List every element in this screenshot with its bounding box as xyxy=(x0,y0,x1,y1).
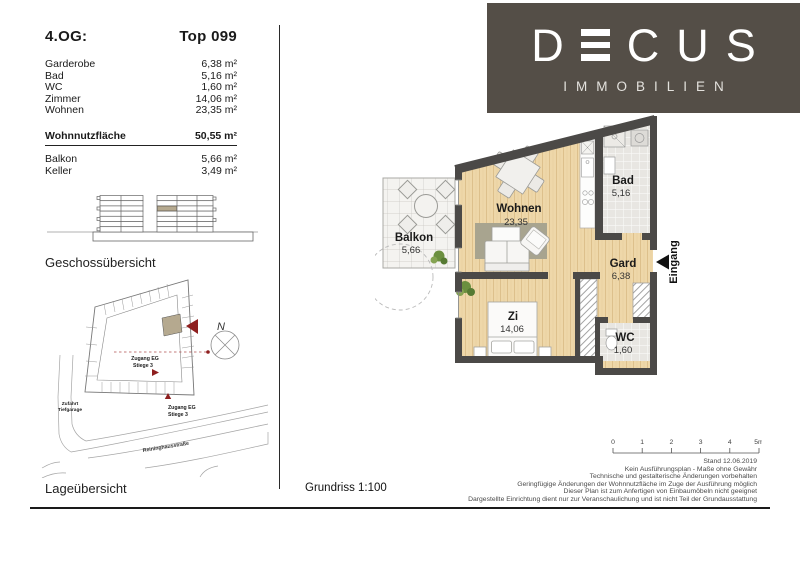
scale-tick: 3 xyxy=(699,439,703,446)
room-name: WC xyxy=(615,332,634,344)
scale-tick: 2 xyxy=(670,439,674,446)
compass-icon xyxy=(211,331,239,359)
room-area: 6,38 xyxy=(612,271,631,282)
room-name: Bad xyxy=(612,175,634,187)
room-name: Gard xyxy=(610,258,637,270)
disclaimer-line: Technische und gestalterische Änderungen… xyxy=(337,473,757,481)
disclaimer-line: Geringfügige Änderungen der Wohnnutzfläc… xyxy=(337,481,757,489)
entrance-label: Eingang xyxy=(668,240,680,283)
highlighted-unit xyxy=(162,314,182,336)
total-value: 50,55 m² xyxy=(195,130,237,142)
room-area: 1,60 xyxy=(614,345,633,356)
left-tower xyxy=(97,196,143,233)
access1-label-line2: Stiege 3 xyxy=(133,363,153,369)
street-label: Reininghausstraße xyxy=(142,441,189,454)
scale-tick: 5m xyxy=(754,439,762,446)
row-value: 3,49 m² xyxy=(201,166,237,178)
table-row: Balkon 5,66 m² xyxy=(45,154,237,166)
floor-overview-diagram xyxy=(45,192,260,250)
scale-tick: 0 xyxy=(611,439,615,446)
building-outline xyxy=(85,280,194,395)
brand-letter: U xyxy=(676,23,726,68)
disclaimer-line: Stand 12.06.2019 xyxy=(337,458,757,466)
brand-wordmark: D C U S xyxy=(531,23,756,68)
garage-label-line2: Tiefgarage xyxy=(58,407,83,413)
right-tower xyxy=(157,196,216,233)
bottom-rule xyxy=(30,507,770,509)
room-name: Zi xyxy=(508,311,518,323)
room-name: Balkon xyxy=(395,232,433,244)
disclaimer-line: Dieser Plan ist zum Anfertigen von Einba… xyxy=(337,488,757,496)
room-area: 5,66 xyxy=(402,245,421,256)
room-area: 14,06 xyxy=(500,324,524,335)
brand-letter: S xyxy=(726,23,773,68)
brand-letter: C xyxy=(627,23,677,68)
access1-label-line1: Zugang EG xyxy=(131,356,159,362)
site-plan: Reininghausstraße Zugang EG Stiege 3 xyxy=(40,272,270,478)
row-label: Keller xyxy=(45,166,72,178)
extra-rows: Balkon 5,66 m² Keller 3,49 m² xyxy=(45,154,237,177)
floor-overview-caption: Geschossübersicht xyxy=(45,255,156,270)
row-value: 6,38 m² xyxy=(201,59,237,71)
floor-label: 4.OG: xyxy=(45,28,87,45)
access-dot-icon xyxy=(206,350,210,354)
total-label: Wohnnutzfläche xyxy=(45,130,126,142)
room-area: 5,16 xyxy=(612,188,631,199)
area-table-header: 4.OG: Top 099 xyxy=(45,28,237,45)
floorplan: Eingang Wohnen 23,35 Balkon 5,66 Bad 5,1… xyxy=(375,105,685,405)
scale-tick: 1 xyxy=(640,439,644,446)
total-row: Wohnnutzfläche 50,55 m² xyxy=(45,130,237,146)
row-label: Garderobe xyxy=(45,59,95,71)
area-table-rows: Garderobe 6,38 m² Bad 5,16 m² WC 1,60 m²… xyxy=(45,59,237,117)
kitchen-counter xyxy=(580,138,595,228)
panel-divider xyxy=(279,25,280,489)
unit-label: Top 099 xyxy=(179,28,237,45)
disclaimer-line: Kein Ausführungsplan - Maße ohne Gewähr xyxy=(337,466,757,474)
row-value: 5,66 m² xyxy=(201,154,237,166)
scale-tick: 4 xyxy=(728,439,732,446)
access2-label-line2: Stiege 3 xyxy=(168,412,188,418)
room-name: Wohnen xyxy=(496,203,541,215)
row-value: 23,35 m² xyxy=(196,105,237,117)
wardrobe xyxy=(633,283,650,319)
table-row: Garderobe 6,38 m² xyxy=(45,59,237,71)
north-label: N xyxy=(217,321,225,333)
access2-label-line1: Zugang EG xyxy=(168,405,196,411)
area-table: 4.OG: Top 099 Garderobe 6,38 m² Bad 5,16… xyxy=(45,28,237,177)
disclaimer-line: Dargestellte Einrichtung dient nur zur V… xyxy=(337,496,757,504)
brand-letter: D xyxy=(531,23,581,68)
scale-bar: 0 1 2 3 4 5m xyxy=(610,437,762,457)
highlighted-floor xyxy=(158,206,177,211)
site-plan-caption: Lageübersicht xyxy=(45,481,127,496)
row-label: Wohnen xyxy=(45,105,84,117)
table-row: Keller 3,49 m² xyxy=(45,166,237,178)
garage-label-line1: Zufahrt xyxy=(62,401,79,407)
brand-e-bars-icon xyxy=(581,29,610,61)
brand-subtitle: IMMOBILIEN xyxy=(563,79,733,94)
brand-logo: D C U S IMMOBILIEN xyxy=(487,3,800,113)
wardrobe xyxy=(580,279,597,357)
table-row: Wohnen 23,35 m² xyxy=(45,105,237,117)
floorplan-caption: Grundriss 1:100 xyxy=(305,482,387,494)
room-area: 23,35 xyxy=(504,217,528,228)
row-label: Balkon xyxy=(45,154,77,166)
disclaimer-block: Stand 12.06.2019 Kein Ausführungsplan - … xyxy=(337,458,757,503)
